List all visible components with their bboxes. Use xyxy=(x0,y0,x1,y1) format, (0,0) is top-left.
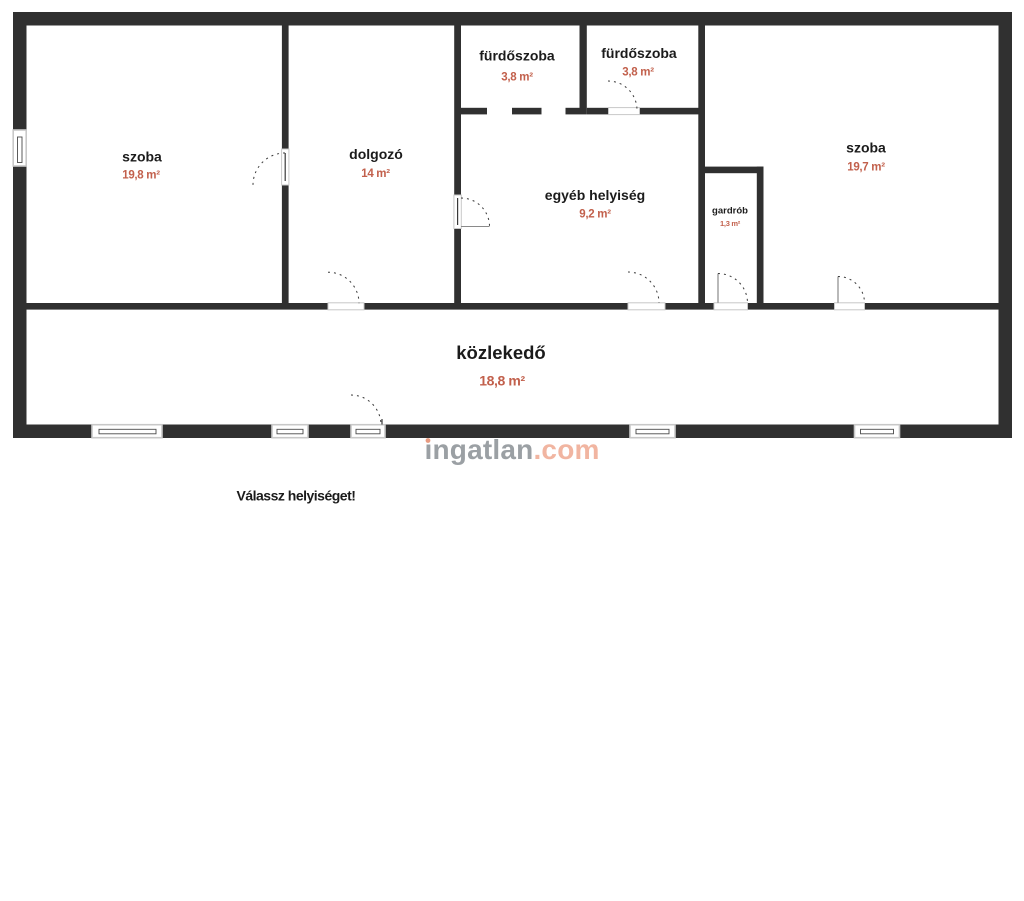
svg-text:19,7 m²: 19,7 m² xyxy=(847,162,885,174)
svg-text:14 m²: 14 m² xyxy=(361,168,390,180)
svg-text:gardrób: gardrób xyxy=(712,206,748,217)
svg-text:ıngatlan.com: ıngatlan.com xyxy=(425,434,600,465)
svg-text:fürdőszoba: fürdőszoba xyxy=(601,45,677,61)
svg-text:fürdőszoba: fürdőszoba xyxy=(479,48,555,64)
svg-text:közlekedő: közlekedő xyxy=(456,342,545,363)
svg-text:19,8 m²: 19,8 m² xyxy=(122,170,160,182)
svg-text:Válassz helyiséget!: Válassz helyiséget! xyxy=(237,488,356,504)
svg-text:3,8 m²: 3,8 m² xyxy=(501,72,533,84)
svg-text:3,8 m²: 3,8 m² xyxy=(622,67,654,79)
svg-text:szoba: szoba xyxy=(846,140,886,156)
svg-text:dolgozó: dolgozó xyxy=(349,146,403,162)
svg-text:18,8 m²: 18,8 m² xyxy=(479,373,525,389)
svg-text:1,3 m²: 1,3 m² xyxy=(720,219,741,228)
svg-text:egyéb helyiség: egyéb helyiség xyxy=(545,187,645,203)
svg-text:szoba: szoba xyxy=(122,149,162,165)
svg-text:9,2 m²: 9,2 m² xyxy=(579,209,611,221)
